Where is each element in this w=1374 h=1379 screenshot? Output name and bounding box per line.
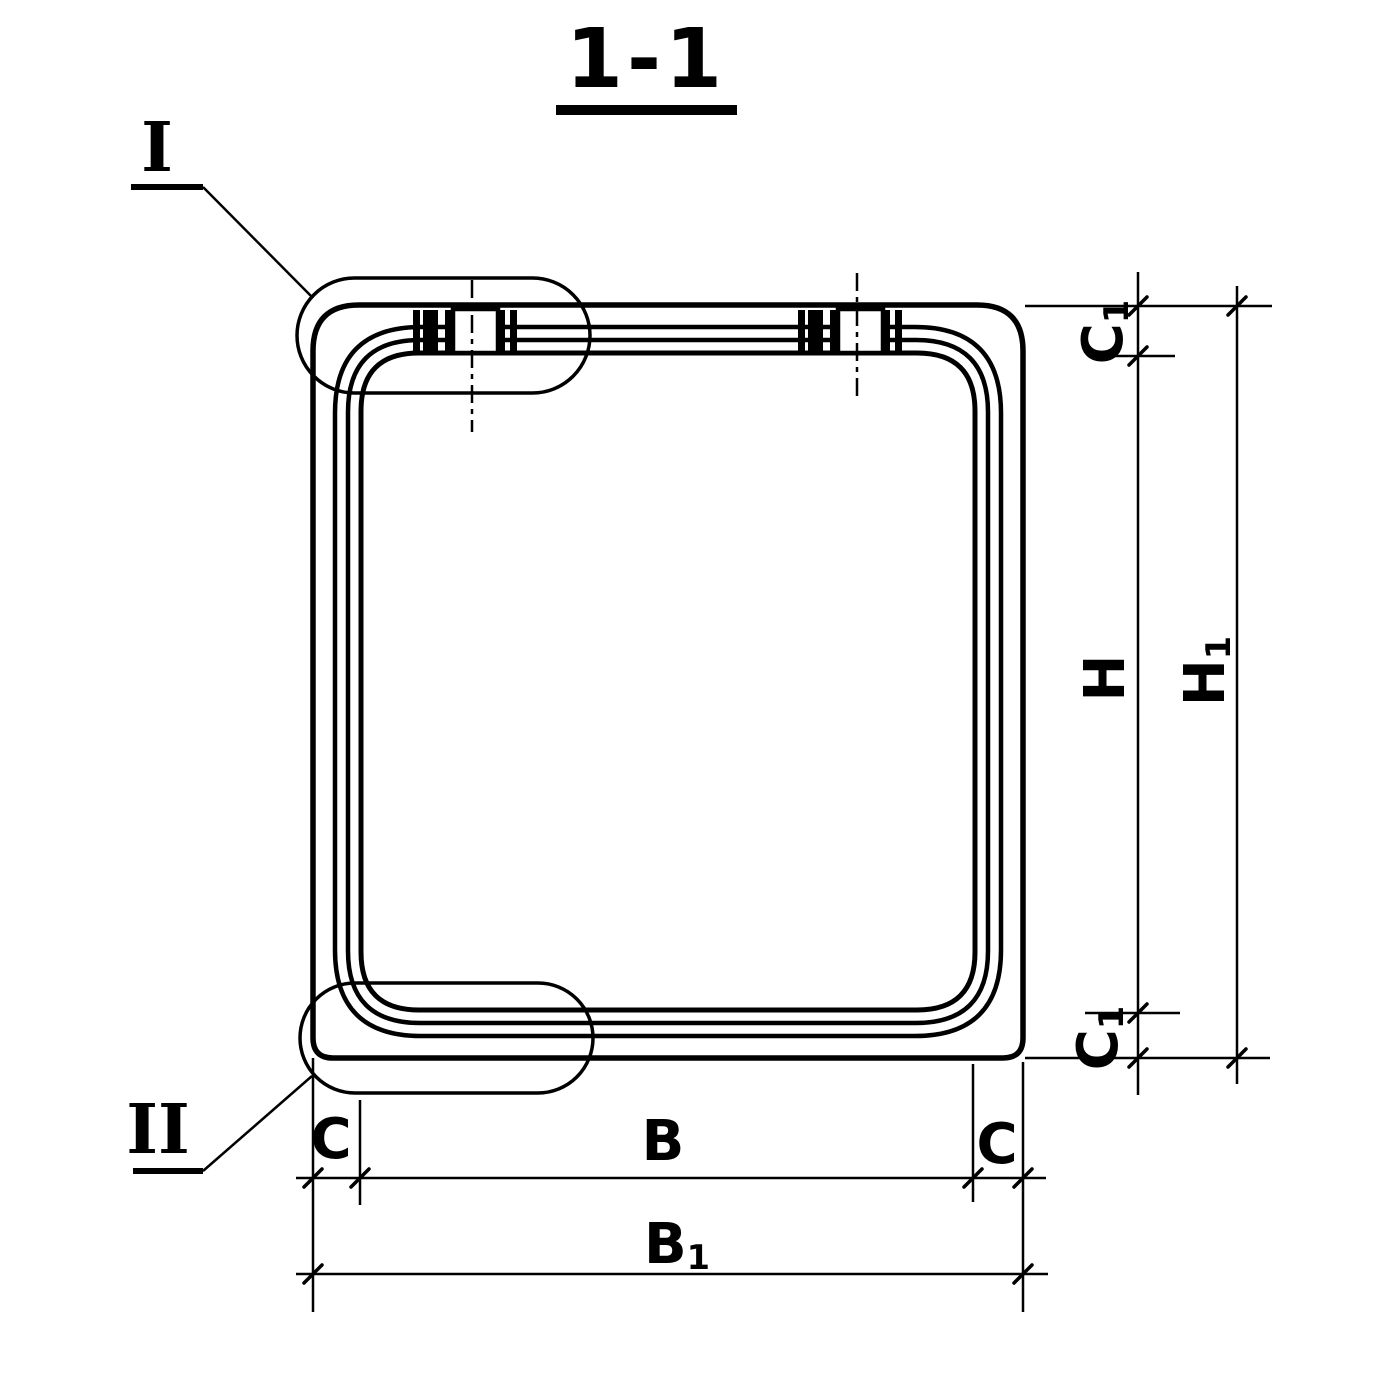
detail-callout-two: II [126,1096,190,1164]
dim-label-c-right: C [976,1117,1017,1173]
callout-one-leader [203,187,313,298]
section-drawing [0,0,1374,1379]
callout-two-leader [203,1076,312,1171]
extension-lines [313,306,1272,1312]
dim-label-b1: B1 [644,1217,710,1273]
dim-label-c-left: C [310,1112,351,1168]
dim-label-c1-bottom: C1 [1071,1006,1127,1070]
top-slab-joint-right [798,273,902,398]
tick-marks [304,297,1246,1283]
inner-line-inner [361,353,975,1010]
drawing-canvas: 1-1 I II C B C B1 C1 H H1 C1 [0,0,1374,1379]
dim-label-b1-sub: 1 [687,1238,710,1277]
section-title: 1-1 [566,19,726,101]
dim-label-c1-top-base: C [1071,323,1136,364]
dim-label-c1-top: C1 [1076,300,1132,364]
detail-balloons [297,278,593,1093]
dim-label-h1-base: H [1173,659,1238,706]
frame-outline [313,305,1023,1058]
dim-label-b: B [642,1114,685,1170]
joint-plate [453,309,498,353]
inner-line-middle [348,340,988,1023]
detail-callout-one: I [141,114,173,182]
inner-line-outer [335,327,1001,1036]
dim-label-c1-bottom-sub: 1 [1092,1006,1131,1029]
dim-label-c1-top-sub: 1 [1097,300,1136,323]
outer-contour [313,305,1023,1058]
dim-label-h: H [1078,655,1134,702]
dim-label-c1-bottom-base: C [1066,1029,1131,1070]
dim-label-b1-base: B [644,1212,687,1277]
dimension-lines [296,272,1237,1274]
joint-plate [838,309,883,353]
dim-label-h1-sub: 1 [1199,636,1238,659]
dim-label-h1: H1 [1178,636,1234,706]
